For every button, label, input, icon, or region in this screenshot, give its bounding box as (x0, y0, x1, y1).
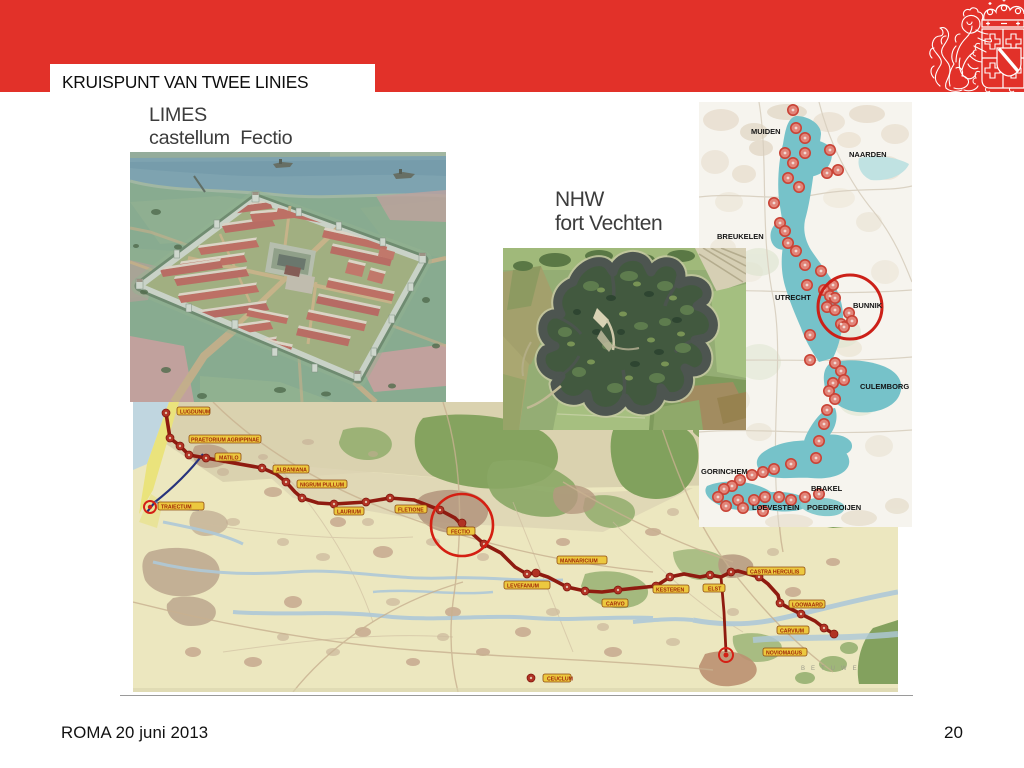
svg-text:MANNARICIUM: MANNARICIUM (560, 558, 598, 564)
svg-text:LAURIUM: LAURIUM (337, 509, 361, 515)
svg-text:CARVIUM: CARVIUM (780, 628, 804, 634)
svg-text:LOEVESTEIN: LOEVESTEIN (752, 503, 800, 512)
svg-text:BRAKEL: BRAKEL (811, 484, 843, 493)
svg-text:BUNNIK: BUNNIK (853, 301, 883, 310)
svg-text:ELST: ELST (708, 586, 722, 592)
svg-text:NOVIOMAGUS: NOVIOMAGUS (766, 650, 803, 656)
svg-text:LOOWAARD: LOOWAARD (792, 602, 823, 608)
svg-text:MUIDEN: MUIDEN (751, 127, 781, 136)
svg-text:CULEMBORG: CULEMBORG (860, 382, 909, 391)
svg-text:LEVEFANUM: LEVEFANUM (507, 583, 539, 589)
svg-text:BREUKELEN: BREUKELEN (717, 232, 764, 241)
svg-text:CEUCLUM: CEUCLUM (547, 676, 573, 682)
svg-text:GORINCHEM: GORINCHEM (701, 467, 748, 476)
svg-text:UTRECHT: UTRECHT (775, 293, 811, 302)
svg-text:FLETIONE: FLETIONE (398, 507, 424, 513)
svg-text:PRAETORIUM AGRIPPINAE: PRAETORIUM AGRIPPINAE (191, 437, 260, 443)
svg-text:MATILO: MATILO (219, 455, 239, 461)
svg-text:NIGRUM PULLUM: NIGRUM PULLUM (300, 482, 344, 488)
svg-text:CASTRA HERCULIS: CASTRA HERCULIS (750, 569, 800, 575)
svg-text:CARVO: CARVO (606, 601, 625, 607)
svg-text:FECTIO: FECTIO (451, 529, 470, 535)
svg-text:KESTEREN: KESTEREN (656, 587, 685, 593)
svg-text:ALBANIANA: ALBANIANA (276, 467, 307, 473)
svg-text:NAARDEN: NAARDEN (849, 150, 887, 159)
svg-text:BETUWE: BETUWE (801, 666, 863, 672)
svg-text:LUGDUNUM: LUGDUNUM (180, 409, 210, 415)
svg-text:TRAIECTUM: TRAIECTUM (161, 504, 192, 510)
svg-text:POEDEROIJEN: POEDEROIJEN (807, 503, 861, 512)
